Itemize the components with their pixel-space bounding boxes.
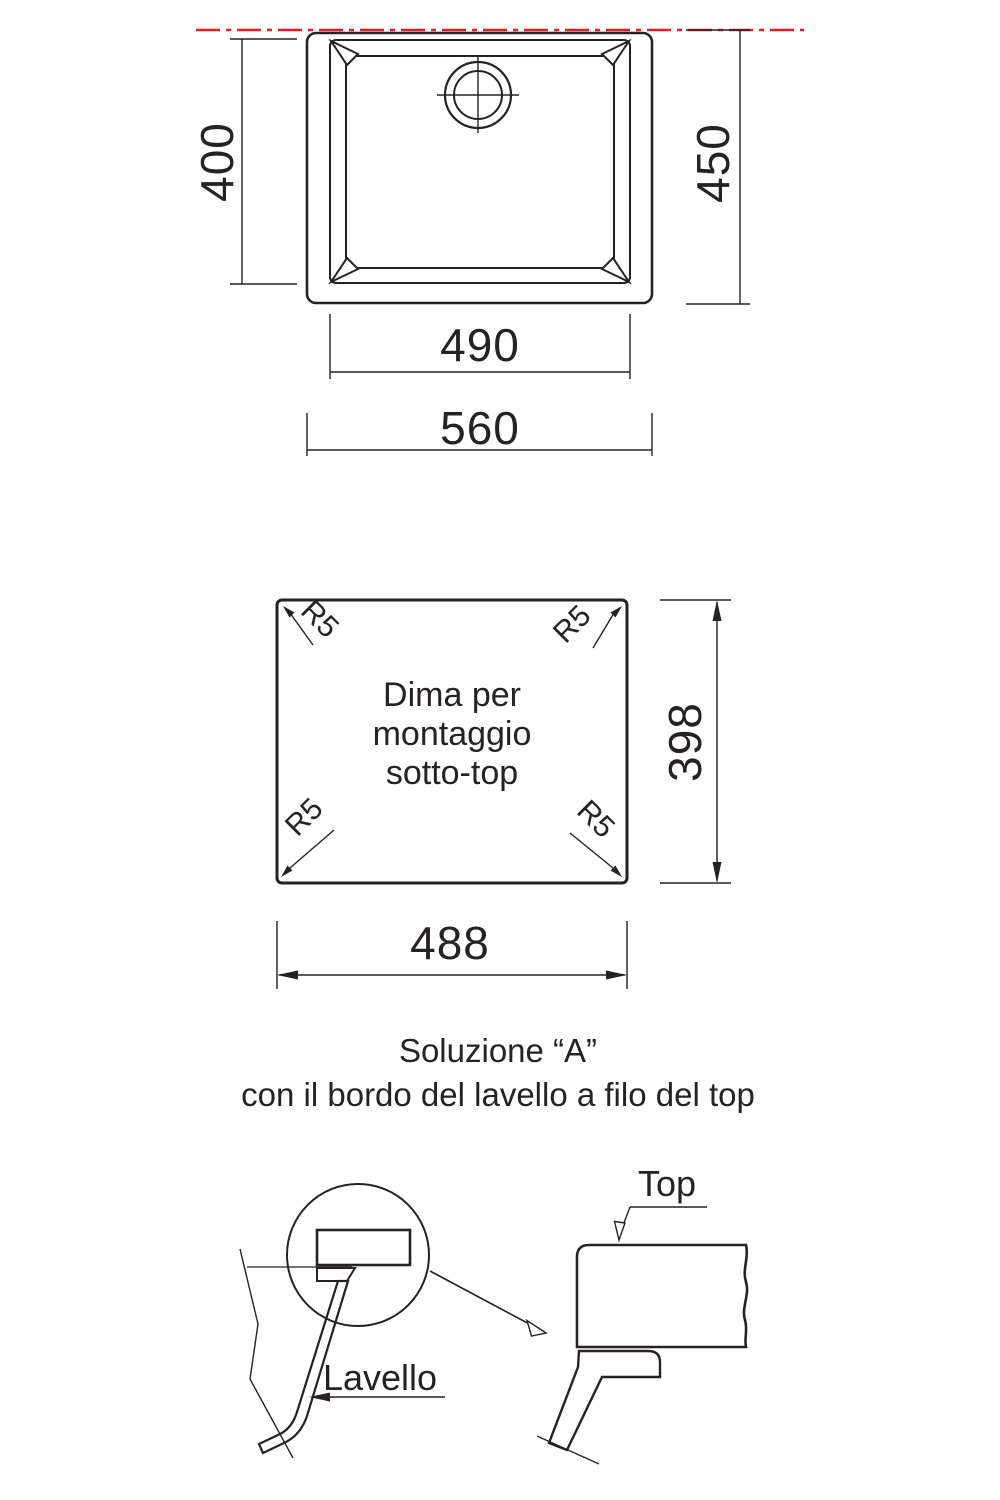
countertop-label-arrowhead-icon xyxy=(615,1222,626,1241)
detail-pointer-line xyxy=(430,1271,533,1326)
dim-label-490: 490 xyxy=(440,319,520,371)
dim-label-560: 560 xyxy=(440,402,520,454)
countertop-label: Top xyxy=(638,1163,696,1204)
template-caption-line3: sotto-top xyxy=(386,754,518,792)
detail-circle xyxy=(287,1184,429,1326)
sink-technical-drawing: 400 450 490 560 Dima per montaggio sot xyxy=(0,0,1000,1500)
section-detail-right: Top xyxy=(537,1163,747,1464)
dim-rim-height: 400 xyxy=(191,39,297,284)
dim-label-398: 398 xyxy=(659,702,711,782)
solution-caption: Soluzione “A” con il bordo del lavello a… xyxy=(241,1032,755,1113)
technical-drawing-page: 400 450 490 560 Dima per montaggio sot xyxy=(0,0,1000,1500)
template-caption-line1: Dima per xyxy=(383,676,521,714)
solution-title: Soluzione “A” xyxy=(399,1032,597,1069)
solution-subtitle: con il bordo del lavello a filo del top xyxy=(241,1076,755,1113)
template-caption-line2: montaggio xyxy=(373,715,532,753)
sink-rim-step xyxy=(317,1268,355,1281)
plan-view: 400 450 490 560 xyxy=(191,30,804,456)
detail-pointer-arrowhead-icon xyxy=(527,1321,546,1337)
dim-template-width: 488 xyxy=(277,917,627,989)
dim-label-400: 400 xyxy=(191,122,243,202)
break-line-left xyxy=(240,1249,293,1458)
sink-outer-outline xyxy=(307,33,652,303)
sink-rim-section xyxy=(549,1351,660,1450)
dim-template-height: 398 xyxy=(659,600,731,883)
template-view: Dima per montaggio sotto-top R5 R5 R5 R5 xyxy=(277,594,731,989)
sink-label: Lavello xyxy=(323,1357,437,1398)
section-detail-left: Lavello xyxy=(240,1184,546,1458)
dim-label-488: 488 xyxy=(410,917,490,969)
dim-label-450: 450 xyxy=(687,123,739,203)
countertop-section-large xyxy=(577,1245,747,1347)
dim-outer-width: 560 xyxy=(307,402,652,456)
dim-outer-height: 450 xyxy=(686,30,750,304)
break-line-right xyxy=(537,1436,599,1464)
countertop-section-small xyxy=(317,1230,410,1265)
dim-rim-width: 490 xyxy=(330,314,630,379)
